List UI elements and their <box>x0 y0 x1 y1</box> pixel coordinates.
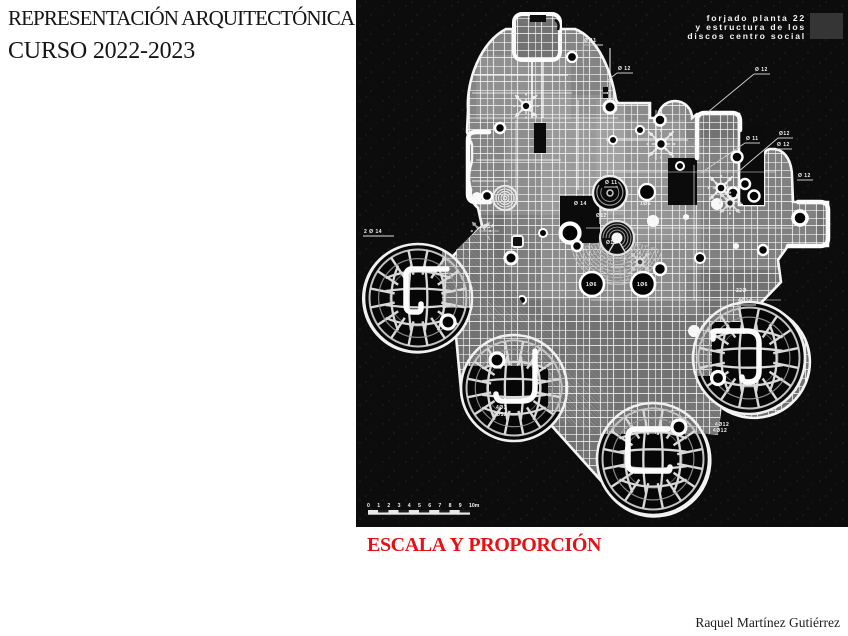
svg-text:Ø 14: Ø 14 <box>574 201 587 207</box>
svg-text:6: 6 <box>428 503 431 509</box>
svg-text:4Ø3: 4Ø3 <box>496 405 507 411</box>
svg-text:discos centro social: discos centro social <box>687 31 806 41</box>
svg-text:4Ø12: 4Ø12 <box>493 412 507 418</box>
svg-text:8: 8 <box>449 503 452 509</box>
svg-text:Ø 11: Ø 11 <box>605 180 618 186</box>
svg-text:Ø 11: Ø 11 <box>746 136 759 142</box>
svg-text:10m: 10m <box>469 503 480 509</box>
svg-text:1Ø6: 1Ø6 <box>637 282 648 288</box>
svg-text:1Ø6: 1Ø6 <box>640 201 651 207</box>
svg-text:1: 1 <box>377 503 380 509</box>
svg-text:Ø 11: Ø 11 <box>584 38 597 44</box>
svg-text:5: 5 <box>418 503 421 509</box>
svg-text:7: 7 <box>438 503 441 509</box>
svg-text:Ø 12: Ø 12 <box>755 67 768 73</box>
svg-text:22Ø: 22Ø <box>736 288 747 294</box>
svg-text:2 Ø 14: 2 Ø 14 <box>364 229 382 235</box>
svg-text:2Ø14: 2Ø14 <box>480 224 494 230</box>
svg-text:1Ø6: 1Ø6 <box>586 282 597 288</box>
svg-text:Ø 12: Ø 12 <box>798 173 811 179</box>
svg-text:3: 3 <box>398 503 401 509</box>
svg-text:0: 0 <box>367 503 370 509</box>
svg-text:Ø 12: Ø 12 <box>777 142 790 148</box>
svg-text:2: 2 <box>387 503 390 509</box>
svg-text:4: 4 <box>408 503 411 509</box>
svg-text:Ø12: Ø12 <box>779 131 790 137</box>
svg-text:9: 9 <box>459 503 462 509</box>
svg-text:Ø12: Ø12 <box>606 240 617 246</box>
svg-text:Ø12: Ø12 <box>596 213 607 219</box>
svg-text:4Ø12: 4Ø12 <box>713 428 727 434</box>
svg-text:4Ø14: 4Ø14 <box>738 298 752 304</box>
svg-text:Ø 12: Ø 12 <box>618 66 631 72</box>
